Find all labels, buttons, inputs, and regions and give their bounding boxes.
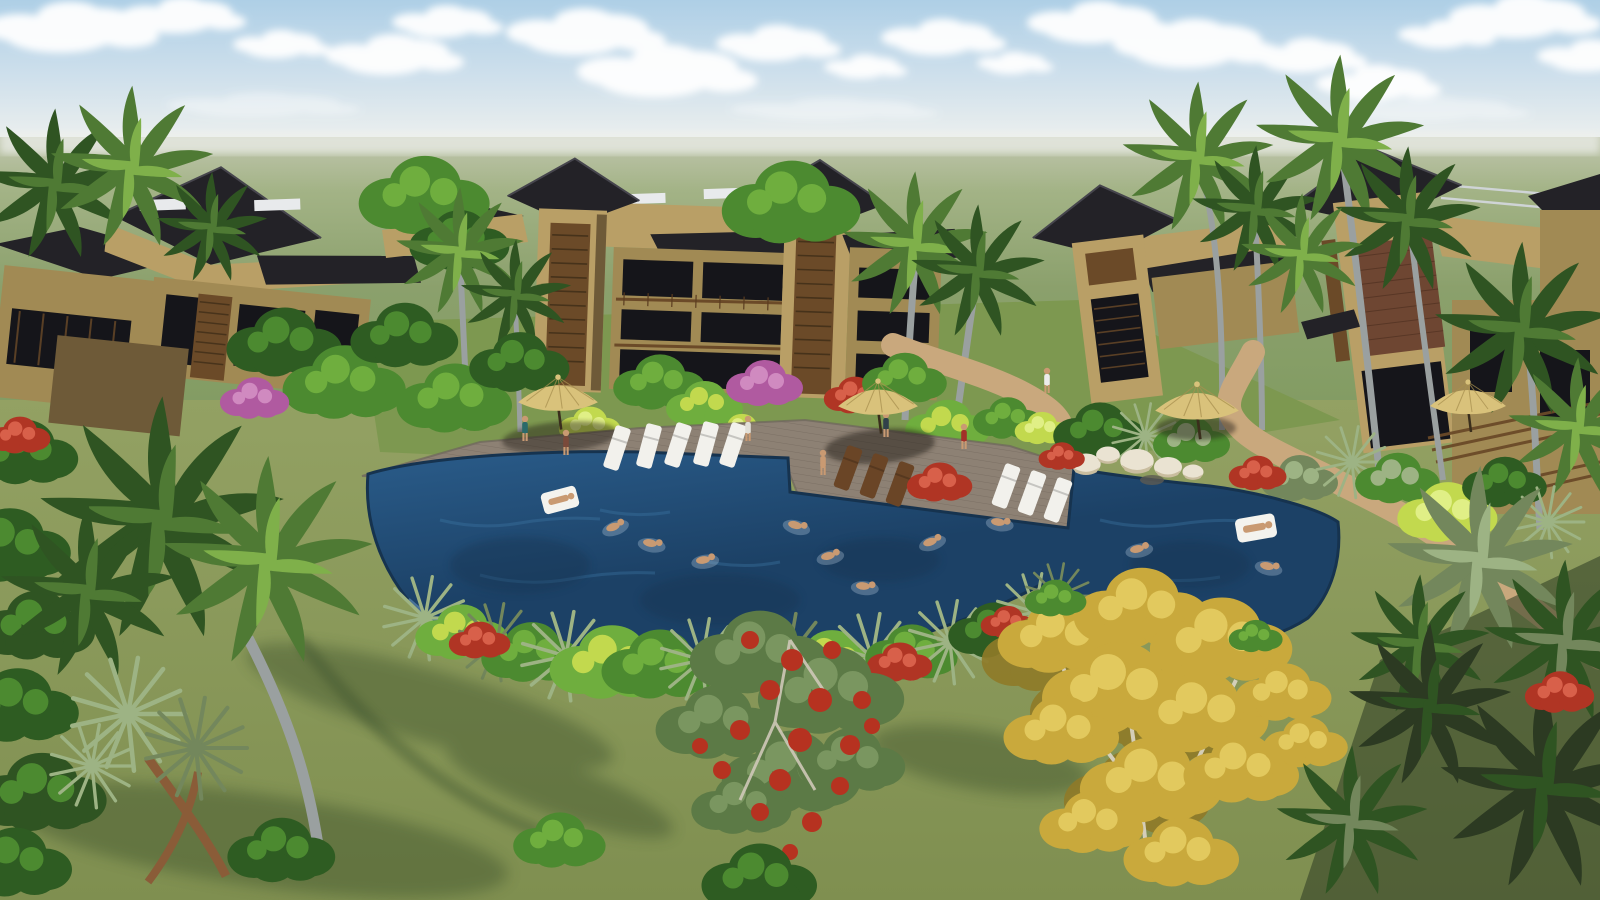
resort-rendering: Tropical resort pool — 3D architectural … [0, 0, 1600, 900]
